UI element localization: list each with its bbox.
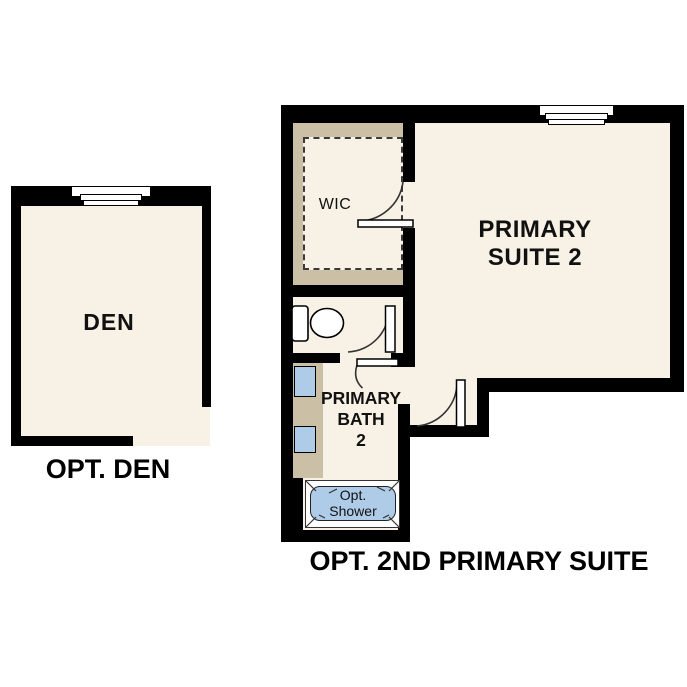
primary-bath-label-line1: PRIMARY — [321, 388, 401, 409]
suite-caption: OPT. 2ND PRIMARY SUITE — [309, 546, 648, 577]
shower-tick-inner-br — [383, 515, 389, 518]
primary-bath-label-line3: 2 — [321, 430, 401, 451]
wic-door-icon — [358, 220, 413, 227]
primary-suite-label-line2: SUITE 2 — [478, 244, 591, 272]
shower-tick-tl — [306, 481, 316, 491]
suite-door-icon — [457, 380, 466, 427]
primary-suite-label-line1: PRIMARY — [478, 216, 591, 244]
wic-label: WIC — [319, 196, 352, 214]
bath-door-arc — [356, 365, 363, 388]
floorplan-canvas: DEN OPT. DEN — [0, 0, 687, 687]
primary-bath-label: PRIMARY BATH 2 — [321, 388, 401, 451]
toilet-door-arc — [348, 307, 389, 352]
primary-suite-label: PRIMARY SUITE 2 — [478, 216, 591, 272]
shower-tick-bl — [306, 517, 316, 527]
shower-tick-br — [389, 517, 399, 527]
suite-door-arc — [417, 383, 457, 426]
toilet-tank-icon — [292, 306, 308, 341]
primary-bath-label-line2: BATH — [321, 409, 401, 430]
toilet-door-icon — [386, 306, 396, 352]
shower-tick-tr — [389, 481, 399, 491]
toilet-bowl-icon — [311, 309, 344, 338]
shower-tick-inner-left — [329, 489, 337, 493]
shower-tick-inner-right — [377, 487, 385, 491]
fixtures-overlay — [0, 0, 687, 687]
bath-door-icon — [357, 359, 398, 366]
wic-door-arc — [358, 182, 403, 221]
shower-tick-inner-bl — [319, 515, 325, 518]
